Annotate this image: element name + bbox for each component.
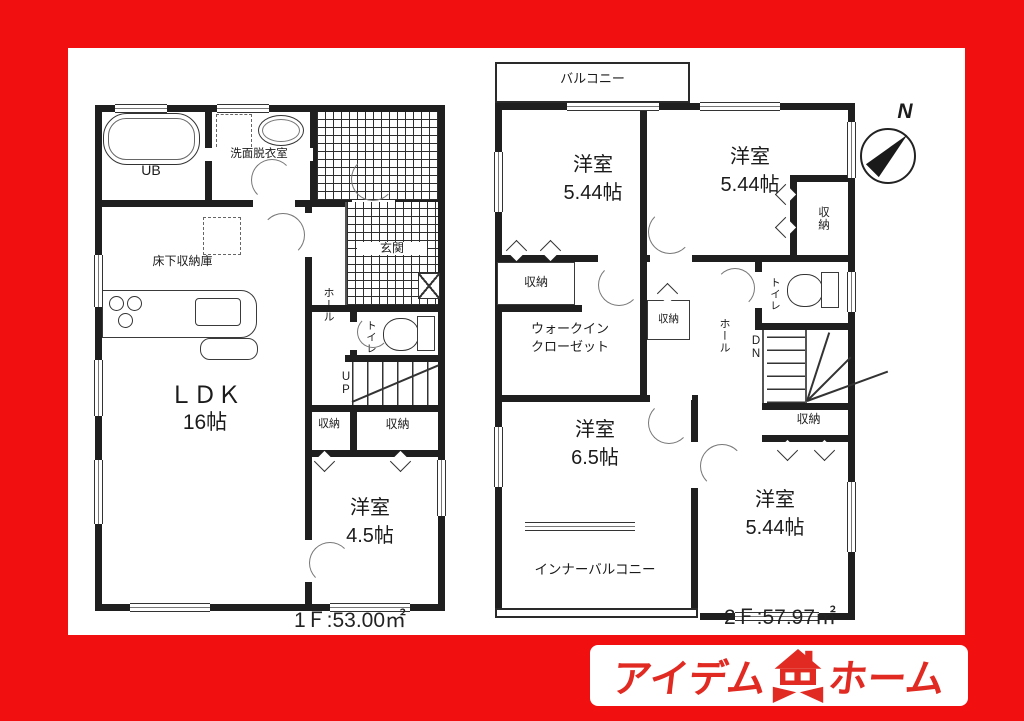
wall (305, 405, 445, 412)
window-marker (130, 603, 210, 612)
closet-label: 収納 (357, 418, 438, 431)
bathtub (103, 113, 200, 165)
toilet-tank (821, 272, 839, 308)
window-marker (847, 482, 856, 552)
washroom-label: 洗面脱衣室 (205, 148, 313, 161)
wall (691, 400, 698, 442)
company-logo: アイデム ホーム (590, 645, 968, 706)
kitchen-sink (195, 298, 241, 326)
floorplan-flyer: 玄関 UB 洗面脱衣室 床下収納庫 ＬＤＫ 16帖 ホール トイレ UP 収納 … (0, 0, 1024, 721)
compass-north-label: N (890, 100, 920, 124)
balcony-label: バルコニー (505, 72, 680, 87)
bedroom2-size-label: 5.44帖 (675, 174, 825, 196)
door-arc (309, 542, 351, 584)
sink (258, 115, 304, 146)
floor1-plan: 玄関 UB 洗面脱衣室 床下収納庫 ＬＤＫ 16帖 ホール トイレ UP 収納 … (95, 105, 445, 611)
wall (305, 200, 312, 213)
door-arc (648, 402, 690, 444)
wall (495, 305, 582, 312)
toilet-bowl (787, 274, 823, 307)
hall-label: ホール (316, 275, 334, 335)
shoe-cabinet-symbol (418, 273, 440, 299)
ldk-label: ＬＤＫ (125, 383, 285, 410)
bedroom3-size-label: 6.5帖 (515, 447, 675, 469)
window-marker (94, 255, 103, 307)
wall (762, 435, 855, 442)
wic-label-line2: クローゼット (495, 340, 645, 355)
wall (95, 200, 253, 207)
ldk-size-label: 16帖 (125, 411, 285, 435)
door-arc (648, 210, 692, 254)
window-marker (437, 460, 446, 516)
door-arc (598, 264, 640, 306)
door-arc (261, 213, 305, 257)
closet-label: 収納 (497, 276, 575, 289)
window-marker (700, 102, 780, 111)
window-marker (115, 104, 167, 113)
ub-label: UB (125, 163, 177, 179)
stairs-divider (805, 330, 807, 403)
window-marker (217, 104, 269, 113)
window-marker (847, 272, 856, 312)
stove-burner (127, 296, 142, 311)
wall (762, 403, 855, 410)
wall (345, 355, 445, 362)
inner-balcony-label: インナーバルコニー (500, 562, 690, 577)
wall (95, 105, 102, 611)
toilet-tank (417, 316, 435, 351)
wall (755, 262, 762, 272)
door-arc (715, 268, 755, 308)
bedroom1-label: 洋室 (523, 154, 663, 176)
logo-text-left: アイデム (610, 648, 770, 704)
wall (350, 312, 357, 322)
window-marker (525, 522, 635, 531)
bedroom4-label: 洋室 (705, 489, 845, 511)
hall-label: ホール (713, 306, 730, 366)
window-marker (494, 427, 503, 487)
wall (495, 103, 567, 110)
stairs-edge-line (762, 330, 764, 403)
genkan-step-line (345, 202, 347, 305)
wall (640, 255, 650, 262)
wall (691, 488, 698, 613)
floor1-area-label: 1Ｆ:53.00㎡ (235, 609, 465, 633)
logo-text-right: ホーム (825, 648, 948, 704)
stairs (767, 330, 805, 403)
wall (692, 255, 855, 262)
window-marker (94, 360, 103, 416)
closet-label: 収納 (762, 413, 855, 426)
window-marker (567, 102, 659, 111)
underfloor-storage-box (203, 217, 241, 255)
underfloor-storage-label: 床下収納庫 (110, 255, 255, 268)
door-arc (351, 157, 395, 201)
bedroom4-size-label: 5.44帖 (705, 517, 845, 539)
window-marker (94, 460, 103, 524)
genkan-label: 玄関 (357, 242, 427, 255)
window-marker (847, 122, 856, 178)
wall (495, 395, 650, 402)
bedroom1-size-label: 5.44帖 (523, 182, 663, 204)
stove-burner (109, 296, 124, 311)
washer-space (216, 114, 252, 152)
toilet-label: トイレ (765, 267, 780, 321)
door-arc (357, 316, 389, 348)
wic-label-line1: ウォークイン (495, 322, 645, 337)
closet-door-mark (777, 440, 798, 461)
house-icon (772, 649, 824, 703)
bedroom2-label: 洋室 (675, 146, 825, 168)
window-marker (494, 152, 503, 212)
closet-label: 収納 (647, 314, 690, 326)
wall (305, 582, 312, 604)
bedroom-label: 洋室 (300, 497, 440, 519)
closet-label: 収納 (307, 418, 351, 430)
wall (640, 103, 647, 255)
floor2-area-label: 2Ｆ:57.97㎡ (660, 606, 900, 630)
floor2-plan: バルコニー 収納 収納 収納 収納 (495, 62, 855, 620)
stairs-up-label: UP (336, 362, 352, 406)
wall (755, 308, 762, 323)
wall (755, 323, 855, 330)
closet-door-mark (814, 440, 835, 461)
door-arc (251, 159, 293, 201)
door-arc (700, 444, 744, 488)
stove-burner (118, 313, 133, 328)
wall (295, 200, 352, 207)
counter-peninsula (200, 338, 258, 360)
compass: N (858, 100, 938, 185)
stairs-down-label: DN (747, 330, 762, 366)
